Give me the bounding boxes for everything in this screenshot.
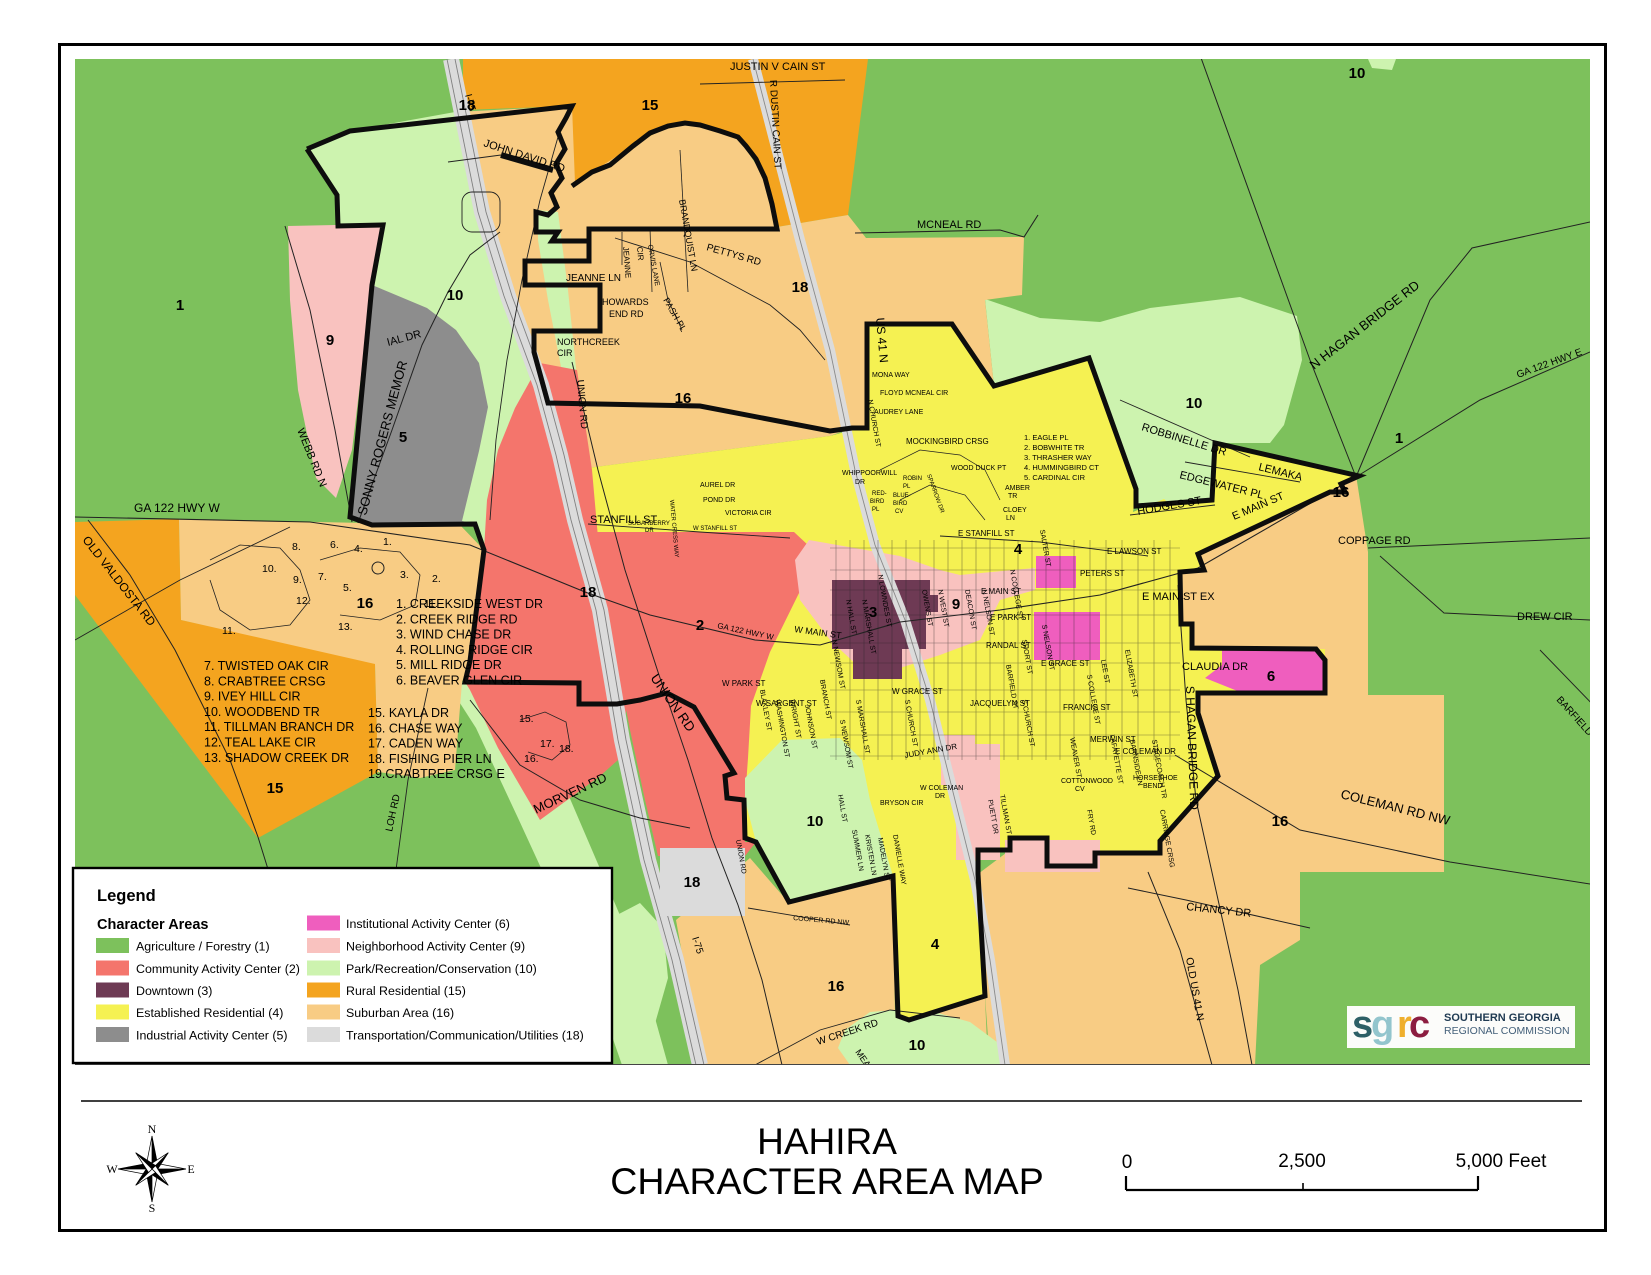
svg-text:5: 5 xyxy=(399,429,407,446)
svg-text:18: 18 xyxy=(792,279,809,296)
svg-text:2: 2 xyxy=(696,617,704,634)
svg-text:E PARK ST: E PARK ST xyxy=(990,613,1031,622)
svg-text:COTTONWOOD: COTTONWOOD xyxy=(1061,778,1113,785)
svg-text:10: 10 xyxy=(1349,65,1366,82)
svg-text:9. IVEY HILL CIR: 9. IVEY HILL CIR xyxy=(204,690,301,704)
svg-text:17. CADEN WAY: 17. CADEN WAY xyxy=(368,737,464,751)
svg-text:12.: 12. xyxy=(296,595,311,607)
svg-text:s: s xyxy=(1352,1004,1373,1046)
svg-text:Downtown (3): Downtown (3) xyxy=(136,984,212,998)
svg-text:2.: 2. xyxy=(432,573,441,585)
svg-text:7. TWISTED OAK CIR: 7. TWISTED OAK CIR xyxy=(204,659,329,673)
svg-text:9: 9 xyxy=(326,332,334,349)
svg-text:LN: LN xyxy=(1006,515,1015,522)
svg-text:Community Activity Center (2): Community Activity Center (2) xyxy=(136,962,300,976)
svg-text:W: W xyxy=(106,1162,118,1176)
svg-text:Established Residential (4): Established Residential (4) xyxy=(136,1006,283,1020)
svg-text:MOCKINGBIRD CRSG: MOCKINGBIRD CRSG xyxy=(906,437,989,446)
svg-text:16: 16 xyxy=(675,390,692,407)
svg-text:15. KAYLA DR: 15. KAYLA DR xyxy=(368,706,449,720)
svg-text:5. CARDINAL CIR: 5. CARDINAL CIR xyxy=(1024,473,1086,482)
svg-text:PL: PL xyxy=(872,507,880,513)
svg-text:9: 9 xyxy=(952,596,960,613)
svg-text:8. CRABTREE CRSG: 8. CRABTREE CRSG xyxy=(204,674,326,688)
svg-text:CV: CV xyxy=(895,509,903,515)
svg-text:1. CREEKSIDE WEST DR: 1. CREEKSIDE WEST DR xyxy=(396,597,543,611)
svg-text:10. WOODBEND TR: 10. WOODBEND TR xyxy=(204,705,320,719)
svg-text:16: 16 xyxy=(828,978,845,995)
svg-text:6: 6 xyxy=(1267,668,1275,685)
svg-text:GA 122 HWY W: GA 122 HWY W xyxy=(134,501,220,515)
svg-text:18: 18 xyxy=(580,584,597,601)
svg-text:Character Areas: Character Areas xyxy=(97,917,209,933)
svg-text:16: 16 xyxy=(1333,484,1350,501)
svg-text:DREW CIR: DREW CIR xyxy=(1517,611,1573,623)
svg-text:1.: 1. xyxy=(383,536,392,548)
svg-text:10.: 10. xyxy=(262,563,277,575)
svg-text:2,500: 2,500 xyxy=(1278,1151,1326,1172)
svg-text:CV: CV xyxy=(1075,786,1085,793)
svg-text:NORTHCREEK: NORTHCREEK xyxy=(557,337,620,347)
svg-text:N: N xyxy=(148,1122,157,1136)
svg-text:Legend: Legend xyxy=(97,887,156,905)
svg-text:Agriculture / Forestry (1): Agriculture / Forestry (1) xyxy=(136,940,270,954)
svg-text:W STANFILL ST: W STANFILL ST xyxy=(693,526,737,532)
svg-text:ROBIN: ROBIN xyxy=(903,476,922,482)
svg-text:Suburban Area (16): Suburban Area (16) xyxy=(346,1006,454,1020)
svg-text:18. FISHING PIER LN: 18. FISHING PIER LN xyxy=(368,752,492,766)
svg-text:10: 10 xyxy=(909,1037,926,1054)
svg-text:0: 0 xyxy=(1122,1152,1133,1173)
svg-text:WOOD DUCK PT: WOOD DUCK PT xyxy=(951,465,1007,472)
svg-text:1: 1 xyxy=(1395,430,1403,447)
svg-text:1: 1 xyxy=(176,297,184,314)
svg-text:3. WIND CHASE DR: 3. WIND CHASE DR xyxy=(396,628,511,642)
svg-text:S: S xyxy=(149,1201,156,1215)
svg-text:MONA WAY: MONA WAY xyxy=(872,372,910,379)
svg-text:3.: 3. xyxy=(400,569,409,581)
svg-text:6. BEAVER GLEN CIR: 6. BEAVER GLEN CIR xyxy=(396,674,522,688)
svg-text:5. MILL RIDGE DR: 5. MILL RIDGE DR xyxy=(396,658,502,672)
svg-text:13.: 13. xyxy=(338,621,353,633)
svg-text:16.: 16. xyxy=(524,753,539,765)
svg-text:PETERS ST: PETERS ST xyxy=(1080,569,1125,578)
svg-text:2. CREEK RIDGE RD: 2. CREEK RIDGE RD xyxy=(396,612,518,626)
svg-text:CLOEY: CLOEY xyxy=(1003,507,1027,514)
svg-text:PL: PL xyxy=(903,484,911,490)
svg-text:13. SHADOW CREEK DR: 13. SHADOW CREEK DR xyxy=(204,751,349,765)
svg-text:MCNEAL RD: MCNEAL RD xyxy=(917,219,981,231)
svg-text:15.: 15. xyxy=(519,713,534,725)
svg-text:17.: 17. xyxy=(540,738,555,750)
svg-text:HOWARDS: HOWARDS xyxy=(602,297,649,307)
svg-text:POND DR: POND DR xyxy=(703,497,735,504)
svg-text:2. BOBWHITE TR: 2. BOBWHITE TR xyxy=(1024,443,1085,452)
svg-text:12. TEAL LAKE CIR: 12. TEAL LAKE CIR xyxy=(204,736,316,750)
svg-text:5.: 5. xyxy=(343,582,352,594)
svg-text:6.: 6. xyxy=(330,539,339,551)
svg-text:VICTORIA CIR: VICTORIA CIR xyxy=(725,510,772,517)
svg-text:E LAWSON ST: E LAWSON ST xyxy=(1107,547,1161,556)
svg-text:CIR: CIR xyxy=(635,246,645,261)
svg-text:DR: DR xyxy=(855,479,865,486)
svg-text:11.: 11. xyxy=(424,598,438,610)
svg-text:16: 16 xyxy=(357,595,374,612)
svg-text:COPPAGE RD: COPPAGE RD xyxy=(1338,535,1411,547)
svg-text:E MAIN ST EX: E MAIN ST EX xyxy=(1142,591,1215,603)
svg-text:TR: TR xyxy=(1008,493,1017,500)
svg-text:W GRACE ST: W GRACE ST xyxy=(892,687,943,696)
svg-text:18: 18 xyxy=(684,874,701,891)
svg-text:CLAUDIA DR: CLAUDIA DR xyxy=(1182,661,1248,673)
svg-text:W COLEMAN: W COLEMAN xyxy=(920,785,963,792)
svg-text:CIR: CIR xyxy=(557,348,573,358)
svg-text:JEANNE LN: JEANNE LN xyxy=(566,273,621,284)
svg-text:10: 10 xyxy=(807,813,824,830)
svg-text:SOUTHERN GEORGIA: SOUTHERN GEORGIA xyxy=(1444,1012,1561,1024)
svg-text:DR: DR xyxy=(645,528,654,534)
svg-text:AUREL DR: AUREL DR xyxy=(700,482,735,489)
svg-text:W PARK ST: W PARK ST xyxy=(722,679,766,688)
svg-text:1. EAGLE PL: 1. EAGLE PL xyxy=(1024,433,1069,442)
svg-text:11. TILLMAN BRANCH DR: 11. TILLMAN BRANCH DR xyxy=(204,720,354,734)
svg-text:8.: 8. xyxy=(292,541,301,553)
svg-text:E COLEMAN DR: E COLEMAN DR xyxy=(1115,747,1176,756)
svg-text:3. THRASHER WAY: 3. THRASHER WAY xyxy=(1024,453,1092,462)
svg-text:Neighborhood Activity Center (: Neighborhood Activity Center (9) xyxy=(346,940,525,954)
svg-text:4: 4 xyxy=(931,936,940,953)
svg-text:10: 10 xyxy=(1186,395,1203,412)
svg-text:HAHIRA: HAHIRA xyxy=(757,1121,897,1162)
svg-text:5,000 Feet: 5,000 Feet xyxy=(1456,1151,1548,1172)
svg-text:CHARACTER AREA MAP: CHARACTER AREA MAP xyxy=(610,1160,1043,1202)
svg-text:Park/Recreation/Conservation (: Park/Recreation/Conservation (10) xyxy=(346,962,537,976)
svg-text:BLUE-: BLUE- xyxy=(893,493,911,499)
svg-text:10: 10 xyxy=(447,287,464,304)
svg-text:BRYSON CIR: BRYSON CIR xyxy=(880,800,923,807)
svg-text:E STANFILL ST: E STANFILL ST xyxy=(958,529,1015,538)
svg-text:BIRD: BIRD xyxy=(893,501,908,507)
svg-text:7.: 7. xyxy=(318,571,327,583)
svg-text:REGIONAL COMMISSION: REGIONAL COMMISSION xyxy=(1444,1025,1570,1037)
svg-text:WHIPPOORWILL: WHIPPOORWILL xyxy=(842,470,897,477)
svg-text:18.: 18. xyxy=(559,743,574,755)
svg-text:4: 4 xyxy=(1014,541,1023,558)
svg-text:RED-: RED- xyxy=(872,491,887,497)
svg-text:FLOYD MCNEAL CIR: FLOYD MCNEAL CIR xyxy=(880,390,948,397)
svg-text:AMBER: AMBER xyxy=(1005,485,1030,492)
svg-text:BIRD: BIRD xyxy=(870,499,885,505)
svg-text:Rural Residential (15): Rural Residential (15) xyxy=(346,984,466,998)
svg-text:Transportation/Communication/U: Transportation/Communication/Utilities (… xyxy=(346,1029,584,1043)
svg-text:AUDREY LANE: AUDREY LANE xyxy=(874,409,924,416)
svg-text:4.: 4. xyxy=(354,543,363,555)
svg-text:15: 15 xyxy=(642,97,659,114)
svg-text:Institutional Activity Center: Institutional Activity Center (6) xyxy=(346,917,510,931)
svg-text:15: 15 xyxy=(267,780,284,797)
svg-text:g: g xyxy=(1371,1004,1394,1046)
svg-text:E: E xyxy=(187,1162,194,1176)
svg-text:16. CHASE WAY: 16. CHASE WAY xyxy=(368,721,463,735)
svg-text:9.: 9. xyxy=(293,574,302,586)
svg-text:SUGARBERRY: SUGARBERRY xyxy=(628,521,670,527)
svg-text:JUSTIN V CAIN ST: JUSTIN V CAIN ST xyxy=(730,61,826,73)
svg-text:Industrial Activity Center (5): Industrial Activity Center (5) xyxy=(136,1029,288,1043)
svg-text:DR: DR xyxy=(935,793,945,800)
svg-text:4. ROLLING RIDGE CIR: 4. ROLLING RIDGE CIR xyxy=(396,643,533,657)
svg-text:4. HUMMINGBIRD CT: 4. HUMMINGBIRD CT xyxy=(1024,463,1099,472)
svg-text:END RD: END RD xyxy=(609,309,644,319)
svg-text:FRANCIS ST: FRANCIS ST xyxy=(1063,703,1111,712)
svg-text:16: 16 xyxy=(1272,813,1289,830)
svg-text:19.CRABTREE CRSG E: 19.CRABTREE CRSG E xyxy=(368,767,505,781)
svg-text:11.: 11. xyxy=(222,625,236,637)
svg-text:c: c xyxy=(1409,1004,1430,1046)
